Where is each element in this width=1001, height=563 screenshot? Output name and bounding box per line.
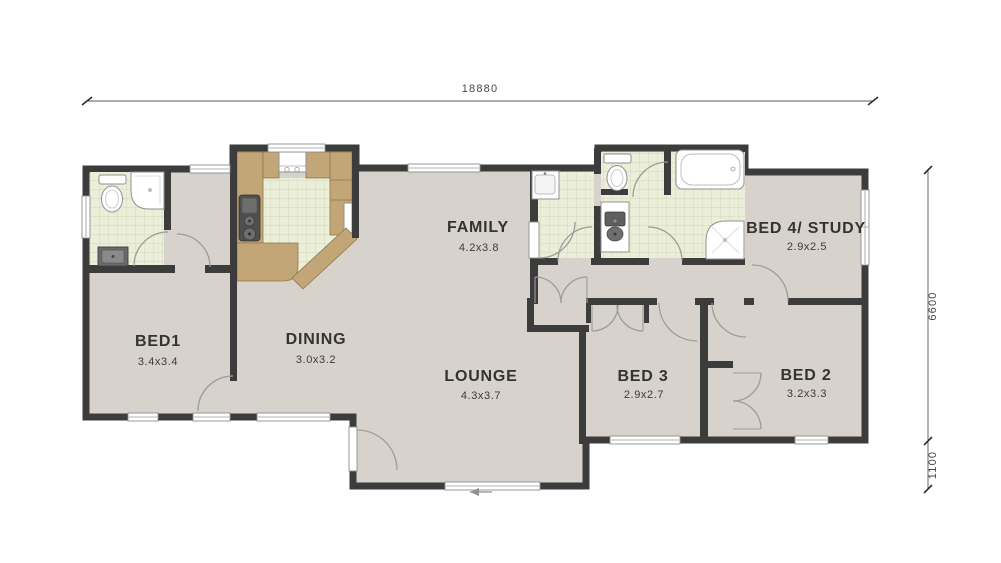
bed1-label: BED1 xyxy=(135,333,181,350)
window-bed3-bottom xyxy=(610,436,680,444)
window-bed2-bottom xyxy=(795,436,828,444)
bathtub-icon xyxy=(676,150,744,189)
kitchen-counter-top-left xyxy=(263,152,279,178)
floor-plan-page: 18880 6600 1100 xyxy=(0,0,1001,563)
wall-hall-jamb-b xyxy=(744,298,754,305)
wall-hall-b xyxy=(695,298,714,305)
window-kitchen-top xyxy=(268,144,325,152)
family-size: 4.2x3.8 xyxy=(459,242,499,254)
bed3-size: 2.9x2.7 xyxy=(624,389,664,401)
building-shell xyxy=(86,148,865,486)
dining-label: DINING xyxy=(286,331,347,348)
wall-laundry-right-upper xyxy=(594,148,601,174)
wall-laundry-right-lower xyxy=(594,206,601,265)
family-label: FAMILY xyxy=(447,219,509,236)
wall-lounge-right xyxy=(579,332,586,444)
window-family-top xyxy=(408,164,480,172)
lounge-size: 4.3x3.7 xyxy=(461,390,501,402)
dimension-right-upper-label: 6600 xyxy=(927,291,939,320)
bed4-size: 2.9x2.5 xyxy=(787,241,827,253)
bed3-label: BED 3 xyxy=(617,368,668,385)
dimension-right: 6600 1100 xyxy=(924,166,939,493)
dimension-top: 18880 xyxy=(82,83,878,105)
bathroom-shower-icon xyxy=(706,221,744,259)
window-ensuite-left xyxy=(82,196,90,238)
window-dining-bottom-b xyxy=(257,413,330,421)
window-robe-top xyxy=(190,165,230,173)
wall-wardrobe-jamb-left xyxy=(586,305,591,323)
floor-plan-drawing: 18880 6600 1100 xyxy=(0,0,1001,563)
window-bed1-bottom xyxy=(128,413,158,421)
wall-service-bottom-a xyxy=(530,258,558,265)
bed2-label: BED 2 xyxy=(780,367,831,384)
kitchen-counter-bottom xyxy=(237,243,298,281)
ensuite-shower-icon xyxy=(131,172,164,209)
window-lounge-bottom xyxy=(445,482,540,490)
cooktop-icon xyxy=(239,195,260,241)
wall-wardrobe-jamb-right xyxy=(644,305,649,323)
wall-bed2-top xyxy=(788,298,868,305)
wall-hall-wardrobe-back xyxy=(586,298,649,305)
bathroom-vanity-icon xyxy=(601,202,629,252)
wall-bed1-kitchen xyxy=(230,148,237,381)
exterior-wall-outline xyxy=(86,148,865,486)
laundry-tub-icon xyxy=(532,171,559,199)
bed2-size: 3.2x3.3 xyxy=(787,388,827,400)
wall-service-bottom-b xyxy=(591,258,649,265)
wall-ensuite-right xyxy=(164,169,171,230)
wall-bed3-bed2 xyxy=(700,305,708,443)
lounge-label: LOUNGE xyxy=(444,368,517,385)
window-dining-bottom-a xyxy=(193,413,230,421)
wall-linen-bottom xyxy=(527,325,589,332)
wall-bed2-closet-stub xyxy=(700,361,733,368)
dimension-right-lower-label: 1100 xyxy=(927,451,939,479)
rangehood-icon xyxy=(279,152,306,172)
kitchen-counter-top-right xyxy=(306,152,330,178)
wall-hall-jamb-a xyxy=(649,298,657,305)
bed1-size: 3.4x3.4 xyxy=(138,356,178,368)
wall-kitchen-right xyxy=(352,148,359,238)
dining-size: 3.0x3.2 xyxy=(296,354,336,366)
dimension-top-label: 18880 xyxy=(462,83,499,95)
ensuite-vanity-icon xyxy=(98,247,128,266)
wall-wc-divider xyxy=(664,148,671,195)
bed4-label: BED 4/ STUDY xyxy=(746,220,866,237)
